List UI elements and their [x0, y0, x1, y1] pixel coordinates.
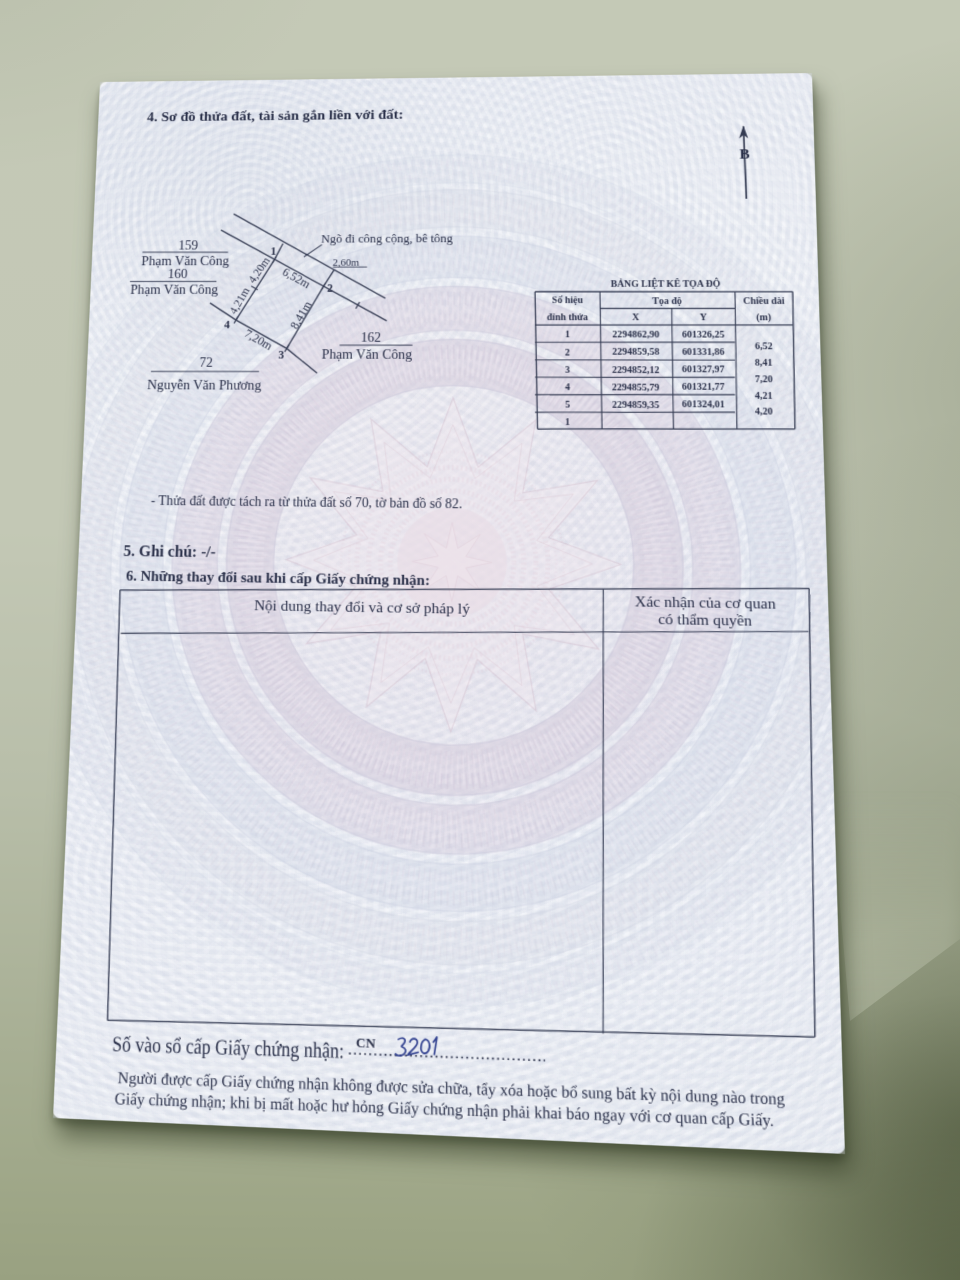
svg-text:(m): (m) — [756, 312, 771, 323]
svg-text:162: 162 — [361, 330, 381, 345]
svg-text:72: 72 — [199, 355, 213, 370]
svg-text:6. Những thay đổi sau khi cấp: 6. Những thay đổi sau khi cấp Giấy chứng… — [126, 568, 430, 589]
svg-text:8,41: 8,41 — [755, 357, 773, 368]
svg-text:601327,97: 601327,97 — [682, 364, 725, 375]
svg-text:Ngõ đi công cộng, bê tông: Ngõ đi công cộng, bê tông — [321, 232, 453, 246]
svg-text:BẢNG LIỆT KÊ TỌA ĐỘ: BẢNG LIỆT KÊ TỌA ĐỘ — [611, 278, 721, 289]
svg-text:Xác nhận của cơ quan: Xác nhận của cơ quan — [635, 593, 776, 612]
svg-text:X: X — [632, 312, 640, 323]
svg-text:Phạm Văn Công: Phạm Văn Công — [130, 282, 219, 297]
svg-text:5. Ghi chú: -/-: 5. Ghi chú: -/- — [123, 543, 216, 562]
svg-text:160: 160 — [168, 267, 188, 282]
svg-text:4: 4 — [565, 381, 571, 392]
svg-text:2294855,79: 2294855,79 — [612, 381, 660, 392]
svg-text:159: 159 — [178, 239, 198, 253]
svg-text:2,60m: 2,60m — [333, 258, 360, 270]
svg-text:Chiều dài: Chiều dài — [743, 295, 785, 306]
svg-text:1: 1 — [565, 416, 570, 427]
svg-text:3: 3 — [565, 364, 571, 375]
svg-text:601331,86: 601331,86 — [682, 346, 725, 357]
svg-text:4,20: 4,20 — [755, 406, 774, 417]
svg-text:2294862,90: 2294862,90 — [612, 329, 660, 340]
svg-text:Nguyễn Văn Phương: Nguyễn Văn Phương — [147, 378, 262, 393]
svg-text:7,20: 7,20 — [755, 373, 774, 384]
svg-text:601326,25: 601326,25 — [682, 329, 725, 340]
svg-text:có thẩm quyền: có thẩm quyền — [658, 610, 752, 629]
svg-text:601321,77: 601321,77 — [682, 381, 725, 392]
svg-text:3: 3 — [278, 349, 284, 362]
svg-text:5: 5 — [565, 399, 571, 410]
svg-text:4. Sơ đồ thửa đất, tài sản gắn: 4. Sơ đồ thửa đất, tài sản gắn liền với … — [147, 106, 404, 124]
svg-text:Số hiệu: Số hiệu — [552, 295, 583, 306]
svg-text:1: 1 — [270, 246, 276, 258]
svg-text:Y: Y — [700, 312, 708, 323]
svg-text:Phạm Văn Công: Phạm Văn Công — [322, 347, 413, 362]
svg-text:4,21: 4,21 — [755, 390, 773, 401]
svg-text:Số vào sổ cấp Giấy chứng nhận:: Số vào sổ cấp Giấy chứng nhận: — [112, 1032, 344, 1063]
svg-text:2294859,58: 2294859,58 — [612, 346, 660, 357]
svg-text:Tọa độ: Tọa độ — [652, 295, 682, 306]
svg-text:đỉnh thửa: đỉnh thửa — [547, 312, 589, 323]
svg-text:601324,01: 601324,01 — [682, 399, 725, 410]
svg-text:1: 1 — [565, 329, 570, 340]
svg-text:6,52: 6,52 — [755, 340, 773, 351]
svg-text:2294852,12: 2294852,12 — [612, 364, 660, 375]
svg-text:2294859,35: 2294859,35 — [612, 399, 660, 410]
svg-text:4: 4 — [224, 319, 231, 332]
svg-text:2: 2 — [327, 282, 333, 295]
svg-text:CN: CN — [356, 1035, 376, 1052]
svg-text:2: 2 — [565, 346, 571, 357]
svg-text:B: B — [739, 146, 750, 162]
